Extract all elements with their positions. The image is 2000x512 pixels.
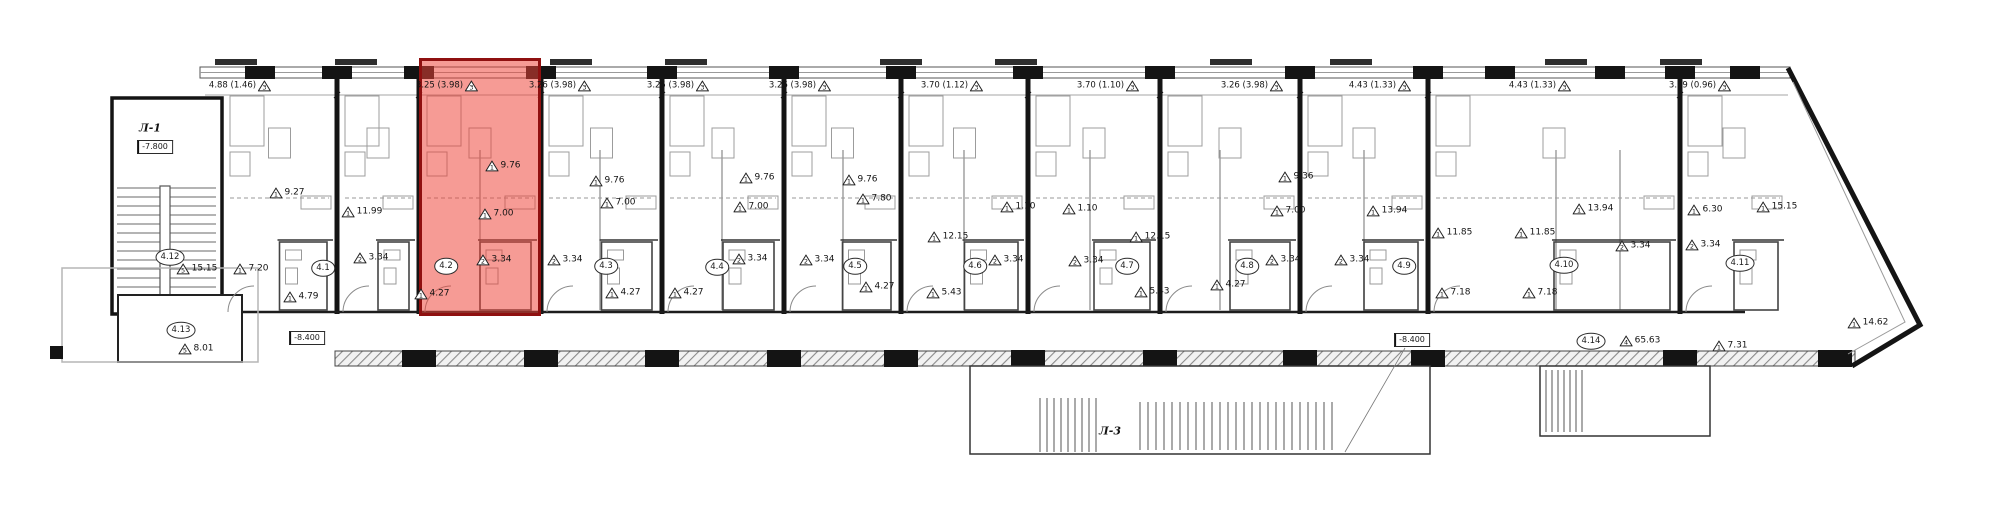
building-structure-svg	[0, 0, 2000, 512]
floor-plan-canvas: Л-1 -7.800 Л-3 4.88 (1.46)33.25 (3.98)33…	[0, 0, 2000, 512]
highlighted-unit-overlay[interactable]	[419, 58, 541, 316]
